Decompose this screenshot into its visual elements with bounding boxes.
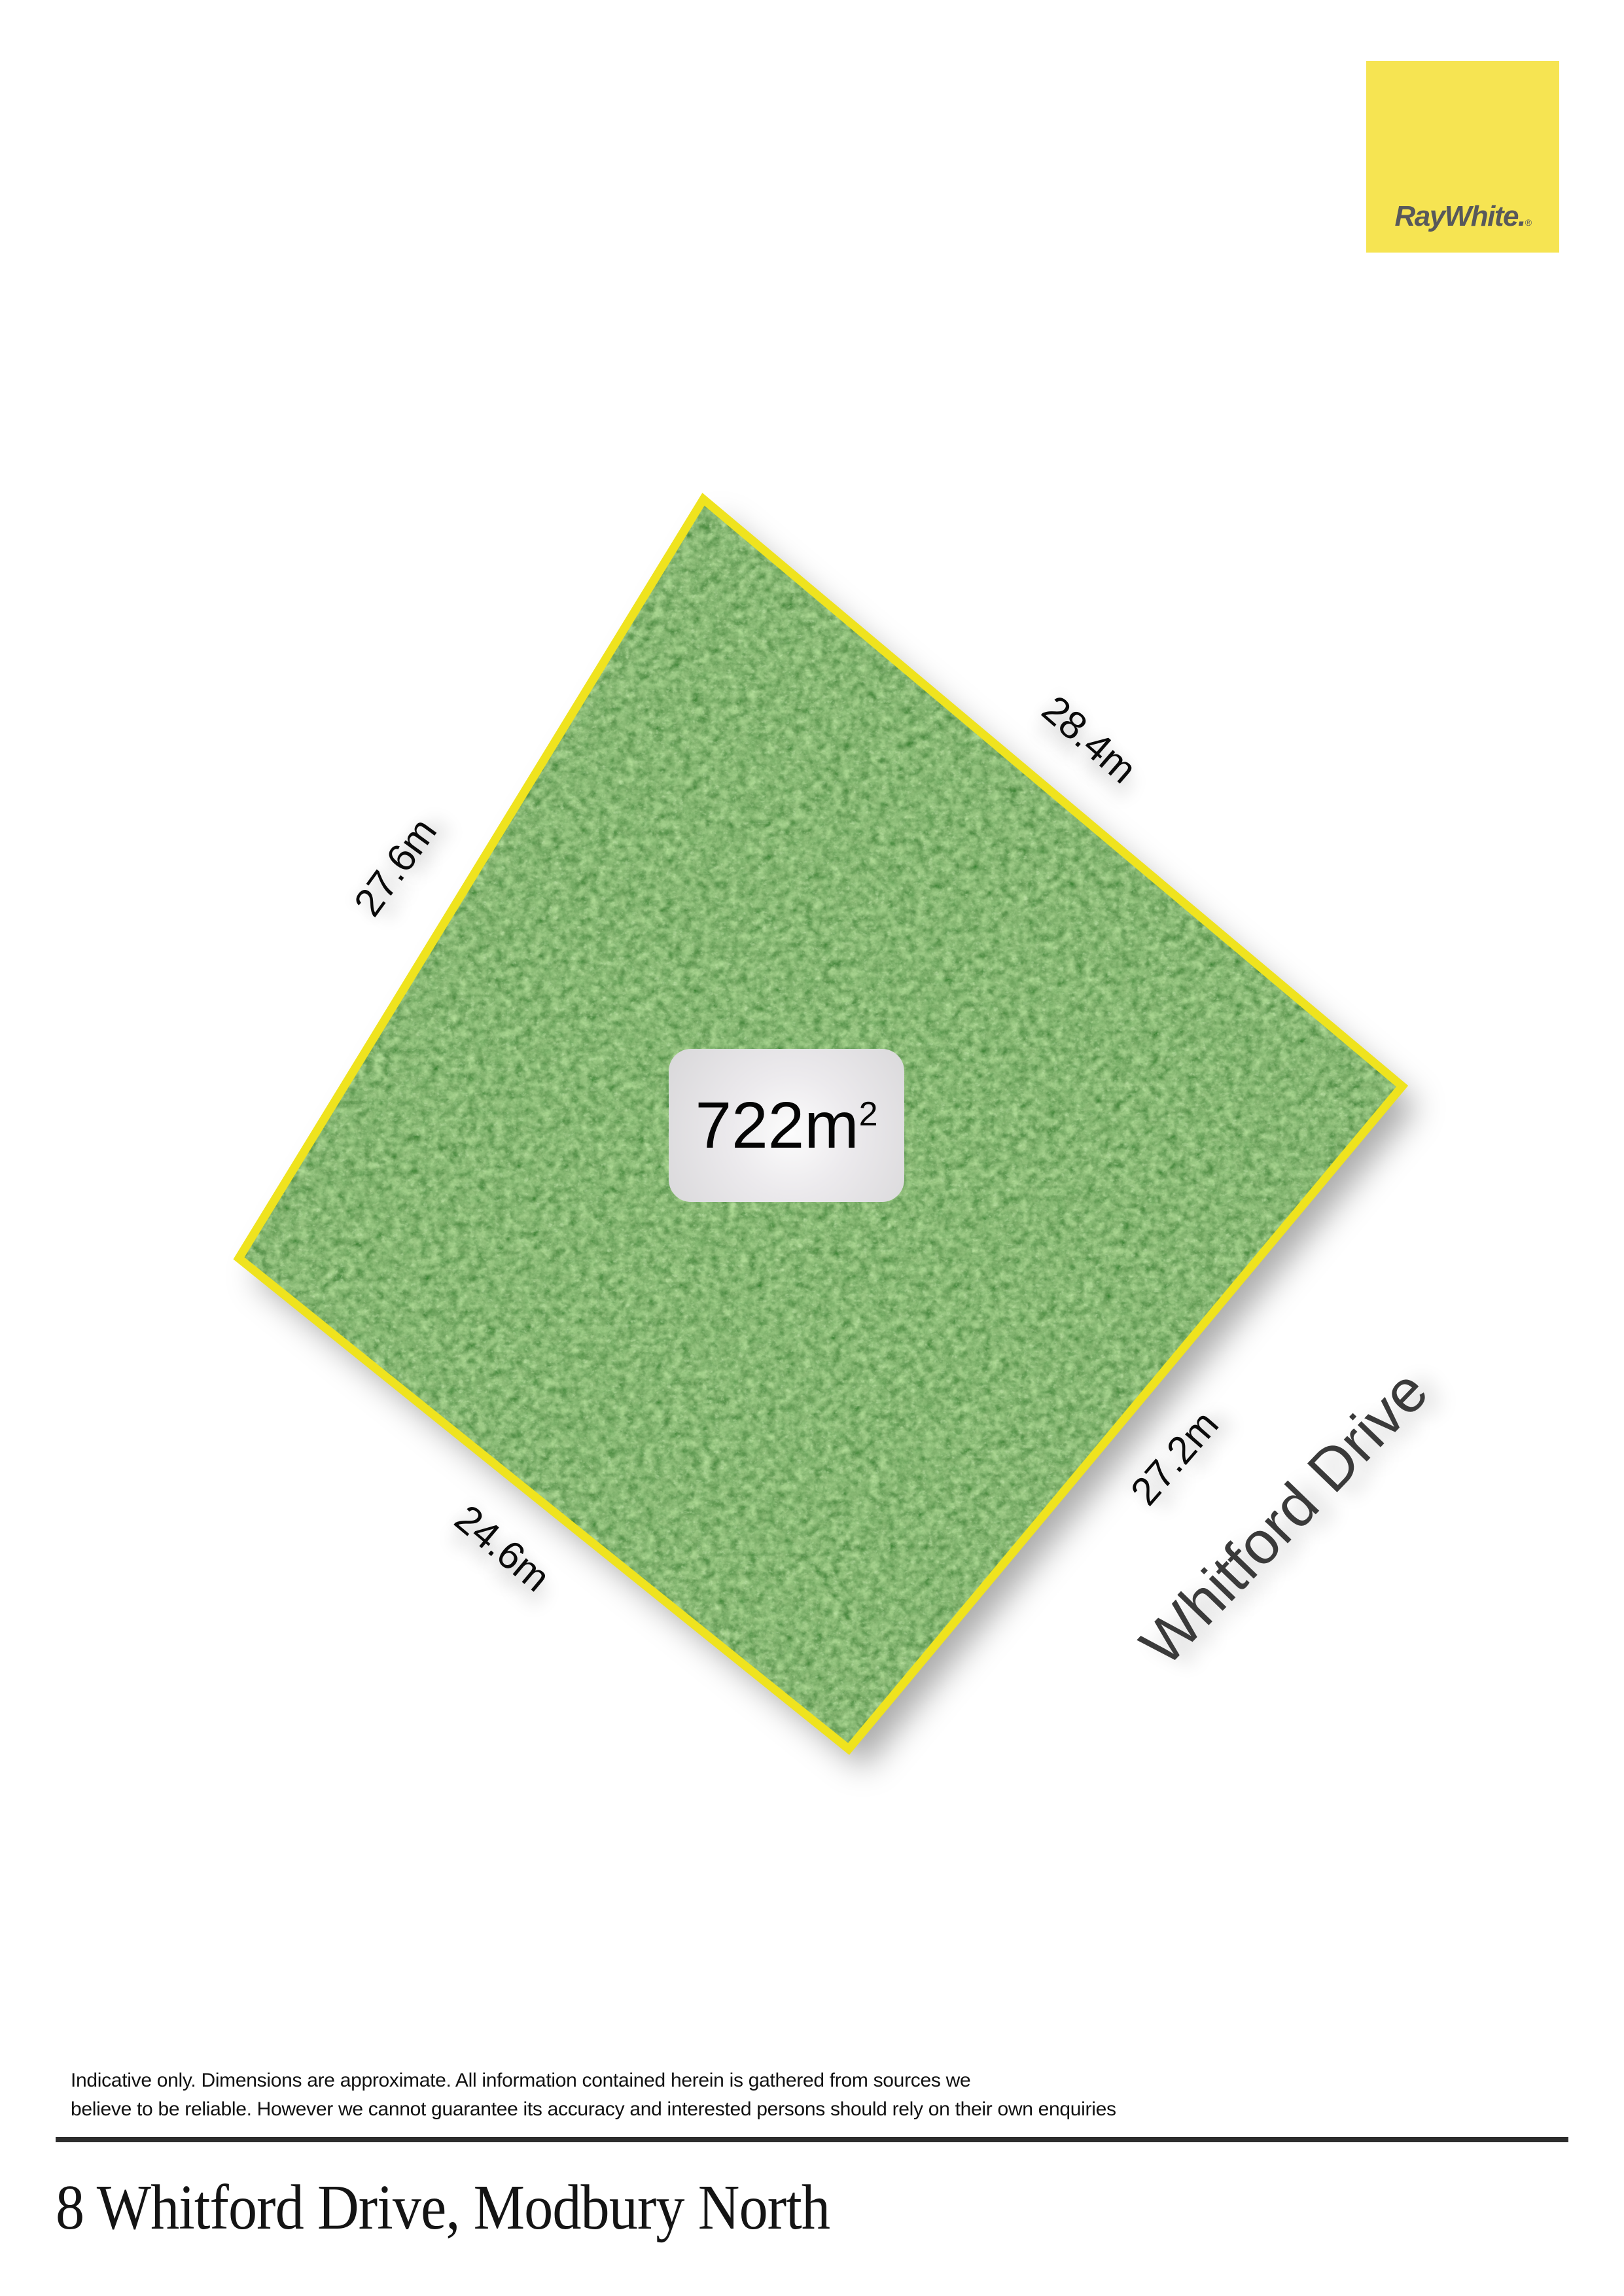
area-value: 722m [695, 1088, 858, 1163]
disclaimer-text: Indicative only. Dimensions are approxim… [71, 2066, 1116, 2124]
area-badge: 722m2 [669, 1049, 904, 1202]
raywhite-brand-text: RayWhite. [1394, 200, 1525, 232]
flyer-page: 28.4m 27.6m 27.2m 24.6m 722m2 Whitford D… [0, 0, 1624, 2296]
raywhite-wordmark: RayWhite.® [1366, 200, 1559, 233]
property-address-title: 8 Whitford Drive, Modbury North [56, 2171, 830, 2244]
raywhite-logo: RayWhite.® [1366, 61, 1559, 253]
footer-divider [56, 2137, 1568, 2142]
disclaimer-line-2: believe to be reliable. However we canno… [71, 2095, 1116, 2124]
disclaimer-line-1: Indicative only. Dimensions are approxim… [71, 2066, 1116, 2095]
registered-trademark-icon: ® [1525, 217, 1531, 228]
